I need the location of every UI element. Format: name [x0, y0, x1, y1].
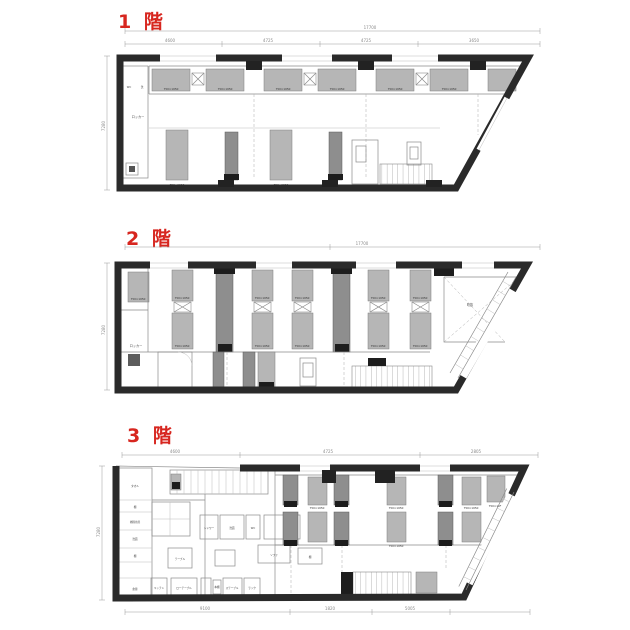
dim-seg: 9100 — [200, 606, 211, 611]
bed-size-label: 750×1950 — [310, 506, 325, 510]
bed-size-label: 750×1950 — [164, 87, 179, 91]
staircase — [352, 366, 432, 388]
dim-overall: 17700 — [356, 241, 369, 246]
bed-size-label: 750×1950 — [389, 544, 404, 548]
dim-seg: 5005 — [405, 606, 416, 611]
room-label: シャワー — [204, 526, 215, 530]
room-label: テーブル — [175, 557, 186, 561]
room-label: 倉庫 — [132, 587, 138, 591]
wc-label: WC — [127, 85, 132, 89]
dim-seg: 1820 — [325, 606, 336, 611]
staircase — [353, 572, 411, 595]
bed-stack: 750×1950 750×1950 — [292, 270, 313, 349]
bed-size-label: 750×1950 — [413, 344, 428, 348]
bed-size-label: 750×1950 — [255, 344, 270, 348]
dim-height: 7280 — [96, 526, 101, 537]
bed-size-label: 750×1950 — [295, 344, 310, 348]
room-label: タオル — [131, 484, 139, 488]
plans-drawing: 750×1950 750×1950 750×1950 750×1950 750×… — [0, 0, 630, 630]
room-label: ローテーブル — [176, 586, 192, 590]
bed-size-label: 750×1950 — [413, 296, 428, 300]
room-label: 本棚 — [214, 585, 220, 589]
room-label: 棚 — [309, 555, 312, 559]
bed-size-label: 750×1950 — [276, 87, 291, 91]
bed-size-label: 750×1950 — [255, 296, 270, 300]
bed-size-label: 750×1950 — [175, 344, 190, 348]
bed-size-label: 750×1950 — [131, 297, 146, 301]
room-label: ステーブル — [226, 586, 239, 590]
dim-seg: 4600 — [165, 38, 176, 43]
bed-size-label: 750×1950 — [388, 87, 403, 91]
dim-seg: 4725 — [361, 38, 372, 43]
locker-label: ロッカー — [130, 343, 143, 348]
bed-stack: 750×1950 750×1950 — [172, 270, 193, 349]
bed-size-label: 750×1950 — [371, 344, 386, 348]
staircase — [380, 164, 432, 184]
bed-size-label: 750×1950 — [295, 296, 310, 300]
bed-stack: 750×1950 750×1950 — [368, 270, 389, 349]
floor-plan-sheet: 1 階 2 階 3 階 — [0, 0, 630, 630]
wash-label: 洗 — [141, 85, 144, 89]
room-label: 掃除用具 — [130, 520, 141, 524]
bed-stack: 750×1950 750×1950 — [410, 270, 431, 349]
dim-seg: 3650 — [469, 38, 480, 43]
dim-seg: 2805 — [471, 449, 482, 454]
bed-size-label: 750×1950 — [389, 506, 404, 510]
floor-3-plan: タオル 棚 掃除用具 洗面 棚 倉庫 シャワー 洗面 WC — [96, 449, 538, 615]
room-label: キッチン — [154, 586, 165, 590]
bed-stack: 750×1950 750×1950 — [252, 270, 273, 349]
room-label: 棚 — [134, 505, 137, 509]
dim-height: 7280 — [101, 120, 106, 131]
bed-size-label: 750×1950 — [442, 87, 457, 91]
floor-1-plan: 750×1950 750×1950 750×1950 750×1950 750×… — [101, 25, 540, 190]
floor-2-plan: 750×1950 750×1950 750×1950 750×1950 750×… — [101, 241, 540, 390]
bed-size-label: 750×1950 — [218, 87, 233, 91]
locker-label: ロッカー — [132, 114, 145, 119]
room-label: 棚 — [134, 554, 137, 558]
room-label: ラック — [248, 586, 256, 590]
room-label: 洗面 — [132, 537, 138, 541]
floor-3-stair-area — [341, 572, 437, 596]
room-label: 洗面 — [229, 526, 235, 530]
dim-seg: 4600 — [170, 449, 181, 454]
bed-size-label: 750×1950 — [330, 87, 345, 91]
dim-seg: 4725 — [263, 38, 274, 43]
bed-size-label: 750×1950 — [464, 506, 479, 510]
room-label: WC — [251, 526, 256, 530]
room-label: ソファ — [270, 553, 278, 557]
dim-overall: 17700 — [364, 25, 377, 30]
void-label: 吹抜 — [467, 302, 474, 307]
dim-seg: 4725 — [323, 449, 334, 454]
bed-size-label: 750×1950 — [371, 296, 386, 300]
bed-size-label: 750×1950 — [175, 296, 190, 300]
dim-height: 7280 — [101, 324, 106, 335]
